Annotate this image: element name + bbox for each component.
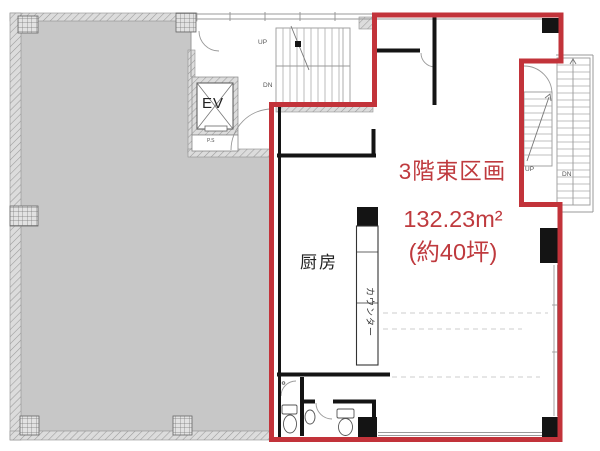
central-stairs-up-label: UP <box>258 40 267 47</box>
kitchen-counter <box>357 207 379 365</box>
counter-label: カウンター <box>365 287 374 337</box>
right-stairs-down-label: DN <box>562 172 571 179</box>
pipe-space-label: P.S <box>207 139 214 144</box>
floor-plan: EV P.S UP DN UP DN 厨房 カウンター 3階東区画 132.23… <box>0 0 600 451</box>
central-staircase <box>276 26 350 104</box>
unit-area-tsubo-label: (約40坪) <box>383 241 523 265</box>
restroom-fixtures <box>282 405 354 436</box>
right-stairs-up-label: UP <box>525 167 534 174</box>
central-stairs-down-label: DN <box>263 83 272 90</box>
right-staircase <box>524 58 590 205</box>
unit-area-sqm-label: 132.23m² <box>383 208 523 232</box>
kitchen-label: 厨房 <box>300 254 338 271</box>
elevator-shaft <box>192 77 238 151</box>
window-lines <box>378 265 559 436</box>
elevator-label: EV <box>202 96 224 111</box>
unit-name-label: 3階東区画 <box>385 161 520 184</box>
dashed-guides <box>383 313 548 377</box>
